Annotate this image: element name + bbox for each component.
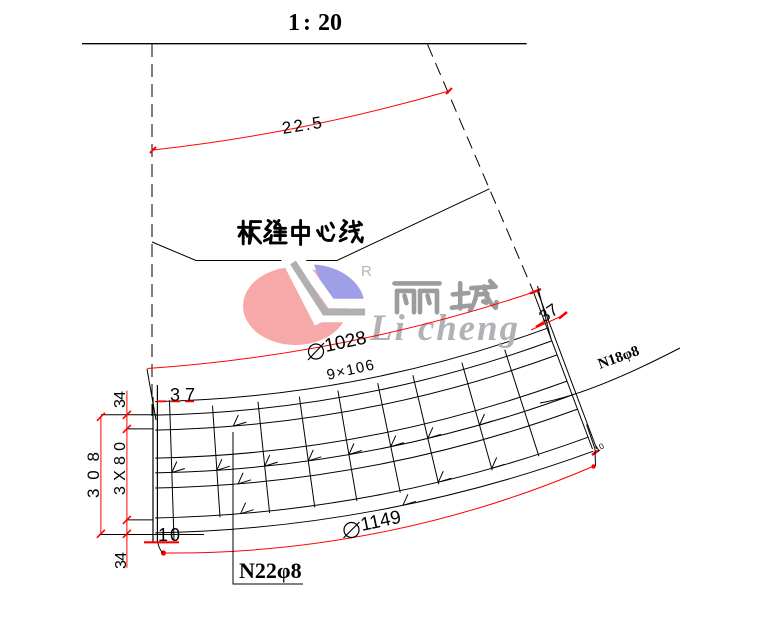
- svg-text:10: 10: [158, 525, 180, 545]
- svg-text:34: 34: [112, 391, 129, 408]
- svg-text:N22φ8: N22φ8: [239, 558, 302, 583]
- svg-text:308: 308: [84, 452, 103, 498]
- svg-text:Li cheng: Li cheng: [369, 308, 518, 349]
- svg-text:1: 1: [288, 10, 300, 36]
- svg-text:34: 34: [113, 552, 130, 569]
- svg-text:R: R: [361, 263, 372, 280]
- svg-text:20: 20: [318, 10, 342, 36]
- svg-text::: :: [303, 10, 311, 36]
